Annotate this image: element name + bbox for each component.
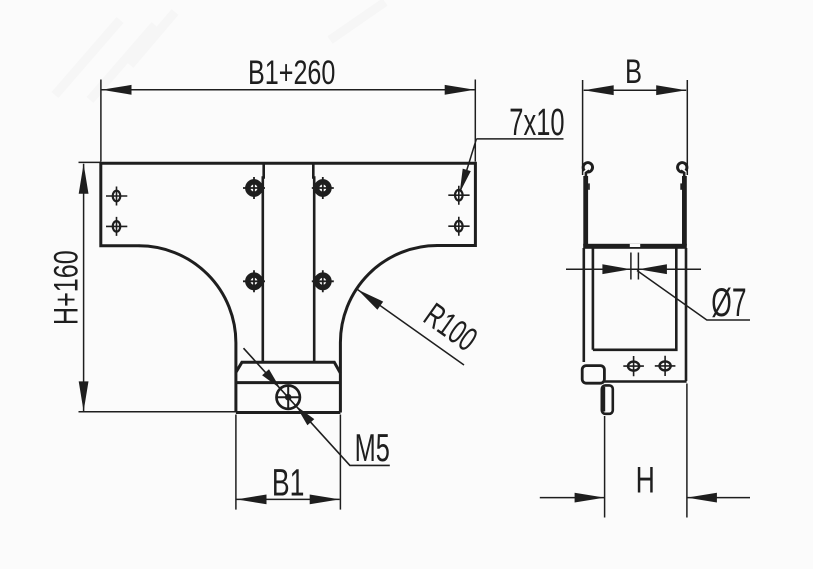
svg-text:B1+260: B1+260 (248, 54, 335, 92)
svg-text:M5: M5 (355, 426, 390, 470)
svg-text:H: H (636, 459, 655, 500)
svg-text:7x10: 7x10 (509, 101, 564, 143)
svg-text:Ø7: Ø7 (711, 281, 746, 326)
svg-text:H+160: H+160 (48, 250, 86, 325)
svg-text:B1: B1 (272, 461, 305, 504)
svg-text:B: B (625, 54, 642, 92)
